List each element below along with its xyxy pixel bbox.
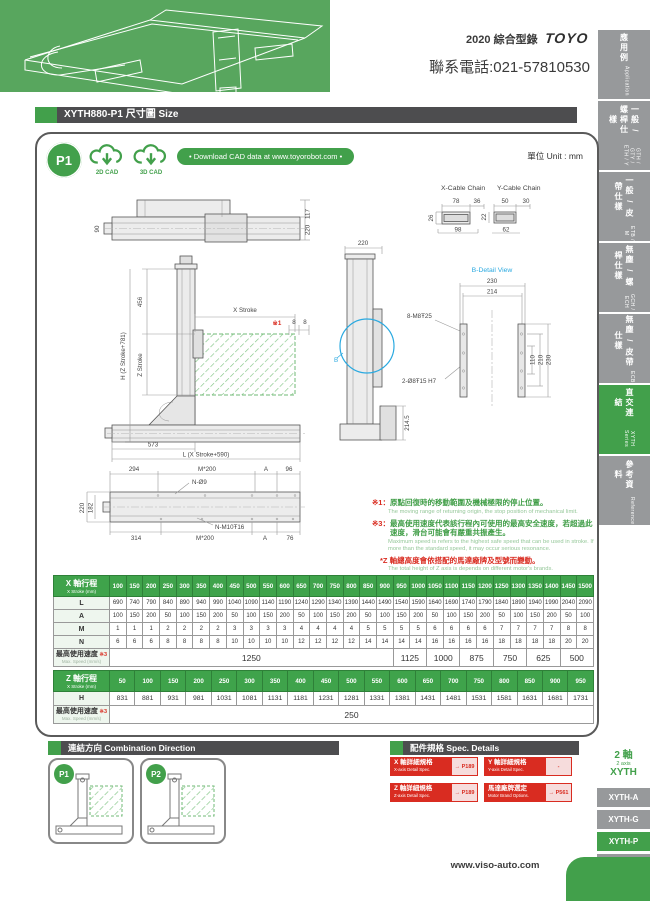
data-cell: 1081: [237, 692, 262, 706]
series-tab-xyth-g[interactable]: XYTH-G: [597, 810, 650, 829]
speed-value: 250: [110, 706, 594, 724]
data-cell: 831: [110, 692, 135, 706]
dim-l: L (X Stroke+590): [183, 452, 230, 459]
data-cell: 1631: [517, 692, 542, 706]
data-cell: 1131: [262, 692, 287, 706]
contact-phone: 聯系電話:021-57810530: [429, 56, 590, 77]
spec-title: 配件規格 Spec. Details: [403, 741, 579, 755]
data-cell: 8: [176, 636, 193, 649]
sidebar-tab-label-en: ECB: [613, 371, 635, 383]
data-cell: 3: [260, 623, 277, 636]
dim-230-right: 230: [546, 354, 553, 365]
series-tab-xyth-a[interactable]: XYTH-A: [597, 788, 650, 807]
y-cable-chain-title: Y-Cable Chain: [497, 185, 541, 192]
data-cell: 1531: [466, 692, 491, 706]
data-cell: 20: [560, 636, 577, 649]
row-label: H: [54, 692, 110, 706]
data-cell: 50: [427, 610, 444, 623]
stroke-value: 600: [276, 576, 293, 597]
dim-214-5: 214.5: [404, 415, 411, 431]
speed-value: 875: [460, 649, 493, 667]
data-cell: 1581: [492, 692, 517, 706]
stroke-value: 500: [339, 671, 364, 692]
dim-8a: 8: [292, 319, 296, 326]
spec-page-link: → P561: [546, 784, 571, 801]
data-cell: 1440: [360, 597, 377, 610]
data-row-L: L690740790840890940990104010901140119012…: [54, 597, 594, 610]
data-cell: 100: [243, 610, 260, 623]
data-cell: 12: [310, 636, 327, 649]
data-cell: 6: [443, 623, 460, 636]
data-cell: 1340: [326, 597, 343, 610]
data-cell: 16: [477, 636, 494, 649]
data-cell: 50: [293, 610, 310, 623]
data-cell: 1590: [410, 597, 427, 610]
data-cell: 100: [310, 610, 327, 623]
note-z-en: The total height of Z axis is depends on…: [372, 566, 594, 573]
data-cell: 1490: [377, 597, 394, 610]
data-cell: 1790: [477, 597, 494, 610]
stroke-header-row: Z 軸行程X Stroke (mm)5010015020025030035040…: [54, 671, 594, 692]
data-cell: 4: [326, 623, 343, 636]
data-cell: 150: [326, 610, 343, 623]
combination-option-p2: P2: [140, 758, 226, 844]
data-cell: 1040: [226, 597, 243, 610]
data-cell: 1: [126, 623, 143, 636]
stroke-value: 950: [393, 576, 410, 597]
stroke-value: 300: [237, 671, 262, 692]
stroke-value: 1350: [527, 576, 544, 597]
speed-row: 最高使用速度 ※3Max. Speed (mm/s)250: [54, 706, 594, 724]
data-cell: 150: [126, 610, 143, 623]
data-cell: 1481: [441, 692, 466, 706]
data-cell: 5: [360, 623, 377, 636]
data-cell: 1: [143, 623, 160, 636]
stroke-value: 100: [110, 576, 127, 597]
data-cell: 200: [143, 610, 160, 623]
data-cell: 790: [143, 597, 160, 610]
dim-a-bottom: A: [263, 535, 268, 542]
data-cell: 8: [160, 636, 177, 649]
data-cell: 8: [577, 623, 594, 636]
data-cell: 18: [493, 636, 510, 649]
dim-h: H (Z Stroke+781): [120, 332, 127, 380]
sidebar-tab-label-en: Reference: [613, 497, 635, 525]
data-cell: 4: [343, 623, 360, 636]
stroke-value: 1450: [560, 576, 577, 597]
data-cell: 1290: [310, 597, 327, 610]
data-cell: 14: [360, 636, 377, 649]
sidebar-tab-label-zh: 無塵 / 皮帶仕樣: [613, 314, 635, 368]
stroke-value: 1200: [477, 576, 494, 597]
sidebar-tab-label-zh: 應用例: [619, 33, 630, 63]
stroke-value: 900: [542, 671, 567, 692]
dim-8b: 8: [303, 319, 307, 326]
stroke-value: 950: [568, 671, 594, 692]
data-cell: 100: [510, 610, 527, 623]
data-cell: 150: [393, 610, 410, 623]
sidebar-tab-label-zh: 無塵 / 螺桿仕樣: [613, 243, 635, 290]
data-cell: 1181: [288, 692, 313, 706]
data-cell: 7: [527, 623, 544, 636]
dim-230-top: 230: [487, 278, 498, 285]
data-cell: 100: [577, 610, 594, 623]
sidebar-tab-label-en: XYTH Series: [613, 423, 635, 454]
stroke-value: 650: [415, 671, 440, 692]
combination-green-square: [48, 741, 61, 755]
data-cell: 2090: [577, 597, 594, 610]
callout-8-m8: 8-M8Ŧ25: [407, 313, 432, 320]
sidebar-tab-etb-m[interactable]: 一般 / 皮帶仕樣ETB / M: [598, 172, 650, 241]
data-cell: 2: [210, 623, 227, 636]
data-cell: 100: [176, 610, 193, 623]
data-cell: 1231: [313, 692, 338, 706]
stroke-value: 1000: [410, 576, 427, 597]
data-cell: 50: [226, 610, 243, 623]
data-cell: 1281: [339, 692, 364, 706]
stroke-value: 250: [211, 671, 236, 692]
dim-294: 294: [129, 466, 140, 473]
stroke-value: 350: [262, 671, 287, 692]
dim-y62: 62: [503, 227, 510, 234]
stroke-value: 300: [176, 576, 193, 597]
row-label: N: [54, 636, 110, 649]
stroke-value: 100: [135, 671, 160, 692]
data-cell: 2: [176, 623, 193, 636]
data-cell: 1331: [364, 692, 389, 706]
data-cell: 18: [543, 636, 560, 649]
sidebar-tab-xyth-series[interactable]: 直交連結XYTH Series: [598, 385, 650, 454]
stroke-value: 200: [186, 671, 211, 692]
data-cell: 10: [260, 636, 277, 649]
stroke-value: 850: [517, 671, 542, 692]
data-cell: 1240: [293, 597, 310, 610]
callout-n-m10: N-M10Ŧ16: [215, 524, 245, 531]
sidebar-tab-label-zh: 一般 / 螺桿仕樣: [608, 101, 641, 138]
data-cell: 50: [160, 610, 177, 623]
data-cell: 150: [460, 610, 477, 623]
data-cell: 981: [186, 692, 211, 706]
dim-z-stroke: Z Stroke: [137, 353, 144, 377]
data-cell: 2: [193, 623, 210, 636]
sidebar-tab-gth-gty-eth-y[interactable]: 一般 / 螺桿仕樣GTH / GTY / ETH / Y: [598, 101, 650, 170]
combination-option-p1: P1: [48, 758, 134, 844]
data-cell: 200: [543, 610, 560, 623]
speed-label: 最高使用速度 ※3Max. Speed (mm/s): [54, 706, 110, 724]
dim-117: 117: [305, 209, 312, 219]
data-cell: 200: [210, 610, 227, 623]
data-cell: 5: [377, 623, 394, 636]
speed-row: 最高使用速度 ※3Max. Speed (mm/s)12501125100087…: [54, 649, 594, 667]
data-cell: 12: [293, 636, 310, 649]
data-cell: 690: [110, 597, 127, 610]
data-cell: 1640: [427, 597, 444, 610]
data-cell: 1890: [510, 597, 527, 610]
series-tab-xyth-p[interactable]: XYTH-P: [597, 832, 650, 851]
stroke-value: 600: [390, 671, 415, 692]
speed-value: 1000: [427, 649, 460, 667]
data-cell: 14: [377, 636, 394, 649]
speed-value: 750: [493, 649, 526, 667]
data-cell: 940: [193, 597, 210, 610]
data-cell: 890: [176, 597, 193, 610]
gantry-illustration: [0, 0, 330, 92]
spec-page-link: → P189: [452, 784, 477, 801]
data-cell: 1031: [211, 692, 236, 706]
stroke-header: Z 軸行程X Stroke (mm): [54, 671, 110, 692]
data-cell: 1681: [542, 692, 567, 706]
series-family: XYTH: [597, 767, 650, 779]
speed-value: 1125: [393, 649, 426, 667]
note-1-zh: 原點回復時的移動範圍及機械極限的停止位置。: [390, 498, 548, 508]
data-cell: 100: [110, 610, 127, 623]
footer-url: www.viso-auto.com: [428, 860, 562, 871]
stroke-value: 450: [226, 576, 243, 597]
stroke-value: 1250: [493, 576, 510, 597]
data-cell: 1690: [443, 597, 460, 610]
data-cell: 4: [293, 623, 310, 636]
note-3-zh: 最高使用速度代表該行程內可使用的最高安全速度，若超過此速度，滑台可能會有嚴重共振…: [390, 519, 594, 538]
dim-110: 110: [530, 355, 537, 365]
spec-button-y-axis-detail-spec-[interactable]: Y 軸詳細規格Y-axis Detail Spec.-: [484, 757, 572, 776]
title-green-square: [35, 107, 57, 123]
stroke-value: 1150: [460, 576, 477, 597]
data-cell: 1740: [460, 597, 477, 610]
data-cell: 1090: [243, 597, 260, 610]
series-axis-zh: 2 軸: [597, 750, 650, 761]
data-cell: 16: [443, 636, 460, 649]
stroke-value: 750: [326, 576, 343, 597]
dim-96: 96: [286, 466, 293, 473]
stroke-value: 1300: [510, 576, 527, 597]
data-cell: 7: [510, 623, 527, 636]
data-cell: 8: [560, 623, 577, 636]
data-cell: 6: [477, 623, 494, 636]
data-cell: 3: [276, 623, 293, 636]
stroke-value: 450: [313, 671, 338, 692]
dim-m200-bottom: M*200: [196, 535, 214, 542]
data-cell: 50: [360, 610, 377, 623]
work-envelope-hatch: [195, 334, 295, 395]
sidebar-tab-reference[interactable]: 參考資料Reference: [598, 456, 650, 525]
brand-logo: TOYO: [544, 30, 589, 46]
data-cell: 6: [460, 623, 477, 636]
combination-title: 連結方向 Combination Direction: [61, 741, 339, 755]
data-row-M: M11122223333444455556666777788: [54, 623, 594, 636]
dim-573: 573: [148, 442, 159, 449]
notes: ※1： 原點回復時的移動範圍及機械極限的停止位置。 The moving ran…: [372, 498, 594, 576]
b-label: B: [334, 357, 338, 364]
data-cell: 5: [410, 623, 427, 636]
data-cell: 14: [410, 636, 427, 649]
spec-button-motor-brand-options-[interactable]: 馬達廠牌選定Motor Brand Options.→ P561: [484, 783, 572, 802]
data-cell: 1540: [393, 597, 410, 610]
stroke-value: 850: [360, 576, 377, 597]
stroke-header-row: X 軸行程X Stroke (mm)1001502002503003504004…: [54, 576, 594, 597]
data-cell: 200: [276, 610, 293, 623]
dim-x36: 36: [474, 198, 481, 205]
sidebar-tab-application[interactable]: 應用例Application: [598, 30, 650, 99]
sidebar-tab-label-zh: 直交連結: [613, 385, 635, 420]
sidebar-tab-label-zh: 一般 / 皮帶仕樣: [613, 172, 635, 223]
spec-page-link: -: [546, 758, 571, 775]
dimension-panel: P1 2D CAD 3D CAD • Download CAD data at …: [35, 132, 599, 737]
spec-page-link: → P189: [452, 758, 477, 775]
x-stroke-table: X 軸行程X Stroke (mm)1001502002503003504004…: [53, 575, 594, 667]
data-cell: 1381: [390, 692, 415, 706]
row-label: L: [54, 597, 110, 610]
speed-value: 500: [560, 649, 593, 667]
spec-button-x-axis-detail-spec-[interactable]: X 軸詳細規格X-axis Detail Spec.→ P189: [390, 757, 478, 776]
dim-x98: 98: [455, 227, 462, 234]
dim-m200-top: M*200: [198, 466, 216, 473]
data-cell: 840: [160, 597, 177, 610]
data-cell: 20: [577, 636, 594, 649]
sidebar-tab-label-en: ETB / M: [613, 226, 635, 241]
data-cell: 1431: [415, 692, 440, 706]
speed-value: 625: [527, 649, 560, 667]
data-cell: 100: [443, 610, 460, 623]
data-cell: 16: [460, 636, 477, 649]
sidebar-tab-ecb[interactable]: 無塵 / 皮帶仕樣ECB: [598, 314, 650, 383]
stroke-value: 800: [492, 671, 517, 692]
data-cell: 6: [110, 636, 127, 649]
dim-x78: 78: [453, 198, 460, 205]
data-cell: 10: [226, 636, 243, 649]
dim-456: 456: [137, 296, 144, 307]
data-cell: 12: [326, 636, 343, 649]
data-cell: 200: [477, 610, 494, 623]
data-cell: 1390: [343, 597, 360, 610]
data-cell: 1140: [260, 597, 277, 610]
speed-value: 1250: [110, 649, 394, 667]
row-label: A: [54, 610, 110, 623]
data-cell: 7: [543, 623, 560, 636]
data-cell: 10: [276, 636, 293, 649]
catalog-header: 2020 綜合型錄 TOYO: [466, 30, 588, 47]
stroke-value: 250: [160, 576, 177, 597]
sidebar-tab-label-en: Application: [619, 66, 630, 96]
data-cell: 150: [527, 610, 544, 623]
stroke-value: 50: [110, 671, 135, 692]
data-cell: 931: [160, 692, 185, 706]
stroke-value: 550: [260, 576, 277, 597]
note-z-zh: *Z 軸總高度會依搭配的馬達廠牌及型號而變動。: [372, 556, 594, 566]
spec-button-z-axis-detail-spec-[interactable]: Z 軸詳細規格Z-axis Detail Spec.→ P189: [390, 783, 478, 802]
catalog-title: 2020 綜合型錄: [466, 31, 538, 47]
data-cell: 3: [243, 623, 260, 636]
data-cell: 740: [126, 597, 143, 610]
stroke-value: 1500: [577, 576, 594, 597]
data-row-N: N666888810101010121212121414141416161616…: [54, 636, 594, 649]
dim-220-top: 220: [305, 224, 312, 235]
spec-buttons: X 軸詳細規格X-axis Detail Spec.→ P189Y 軸詳細規格Y…: [390, 757, 574, 802]
dim-76: 76: [287, 535, 294, 542]
dim-220-plan: 220: [79, 502, 86, 513]
stroke-value: 1400: [543, 576, 560, 597]
callout-n-o9: N-Ø9: [192, 479, 207, 486]
data-cell: 8: [210, 636, 227, 649]
data-cell: 4: [310, 623, 327, 636]
sidebar-tab-label-en: GCH / ECH: [613, 293, 635, 312]
stroke-value: 200: [143, 576, 160, 597]
data-cell: 150: [260, 610, 277, 623]
product-line-art-image: [0, 0, 330, 92]
stroke-value: 1100: [443, 576, 460, 597]
stroke-value: 800: [343, 576, 360, 597]
x-cable-chain-title: X-Cable Chain: [441, 185, 485, 192]
dim-a-top: A: [264, 466, 269, 473]
dim-x26: 26: [428, 214, 435, 221]
callout-2-o8: 2-Ø8Ŧ15 H7: [402, 378, 437, 385]
data-cell: 6: [143, 636, 160, 649]
stroke-value: 1050: [427, 576, 444, 597]
stroke-value: 700: [441, 671, 466, 692]
data-cell: 8: [193, 636, 210, 649]
data-cell: 18: [510, 636, 527, 649]
dim-314: 314: [131, 535, 142, 542]
stroke-value: 350: [193, 576, 210, 597]
sidebar-tab-label-en: GTH / GTY / ETH / Y: [608, 141, 641, 170]
data-cell: 1731: [568, 692, 594, 706]
data-cell: 881: [135, 692, 160, 706]
dim-x-stroke: X Stroke: [233, 307, 257, 314]
sidebar-tab-gch-ech[interactable]: 無塵 / 螺桿仕樣GCH / ECH: [598, 243, 650, 312]
data-cell: 6: [427, 623, 444, 636]
series-header: 2 軸 2 axis XYTH: [597, 750, 650, 779]
stroke-value: 150: [160, 671, 185, 692]
page-corner-tab: [566, 857, 650, 901]
dim-220-side: 220: [358, 240, 369, 247]
note-1-ref: ※1：: [372, 498, 390, 508]
combo-badge: P2: [146, 764, 166, 784]
stroke-value: 750: [466, 671, 491, 692]
dim-y22: 22: [481, 213, 488, 220]
data-cell: 1840: [493, 597, 510, 610]
data-cell: 1: [110, 623, 127, 636]
stroke-value: 400: [288, 671, 313, 692]
z-stroke-table: Z 軸行程X Stroke (mm)5010015020025030035040…: [53, 670, 594, 724]
stroke-value: 900: [377, 576, 394, 597]
speed-label: 最高使用速度 ※3Max. Speed (mm/s): [54, 649, 110, 667]
data-cell: 1940: [527, 597, 544, 610]
dim-y30: 30: [523, 198, 530, 205]
row-label: M: [54, 623, 110, 636]
data-cell: 150: [193, 610, 210, 623]
data-row-A: A100150200501001502005010015020050100150…: [54, 610, 594, 623]
note-ref-1-marker: ※1: [273, 319, 282, 327]
stroke-value: 400: [210, 576, 227, 597]
data-cell: 5: [393, 623, 410, 636]
stroke-value: 150: [126, 576, 143, 597]
data-cell: 50: [560, 610, 577, 623]
stroke-value: 700: [310, 576, 327, 597]
data-cell: 2: [160, 623, 177, 636]
data-cell: 16: [427, 636, 444, 649]
spec-green-square: [390, 741, 403, 755]
dim-182: 182: [88, 502, 95, 513]
stroke-value: 500: [243, 576, 260, 597]
data-cell: 14: [393, 636, 410, 649]
data-cell: 50: [493, 610, 510, 623]
stroke-header: X 軸行程X Stroke (mm): [54, 576, 110, 597]
stroke-value: 650: [293, 576, 310, 597]
data-cell: 12: [343, 636, 360, 649]
note-3-en: Maximum speed is refers to the highest s…: [372, 539, 594, 553]
dim-90: 90: [94, 225, 101, 232]
sidebar-tab-label-zh: 參考資料: [613, 456, 635, 494]
data-cell: 1990: [543, 597, 560, 610]
